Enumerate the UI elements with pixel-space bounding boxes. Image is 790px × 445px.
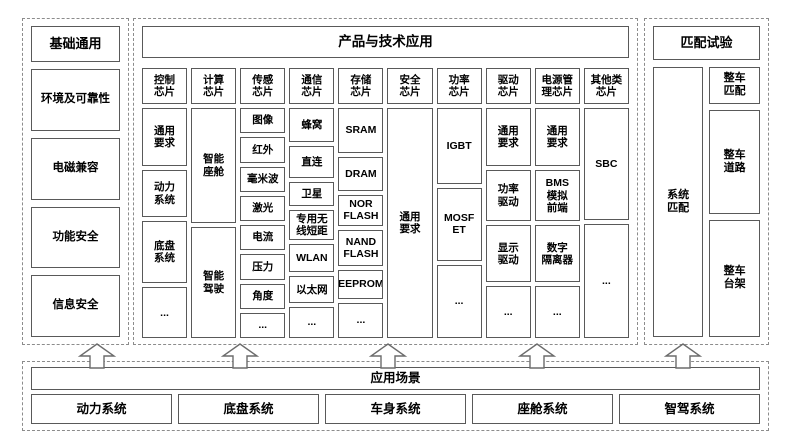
column-header: 电源管 理芯片 [535,68,580,104]
list-item-functional-safety: 功能安全 [31,207,120,269]
cell-intelligent-driving-system: 智驾系统 [619,394,760,424]
cell: DRAM [338,157,383,191]
cell: 通用 要求 [387,108,432,338]
cell: 功率 驱动 [486,170,531,222]
list-item-environment-reliability: 环境及可靠性 [31,69,120,131]
panel-products-technology-title: 产品与技术应用 [142,26,629,58]
column-security-chips: 安全 芯片 通用 要求 [387,68,432,338]
cell-system-matching: 系统 匹配 [653,67,703,337]
cell: 角度 [240,284,285,309]
column-header: 计算 芯片 [191,68,236,104]
cell: 显示 驱动 [486,225,531,282]
column-power-management-chips: 电源管 理芯片 通用 要求 BMS 模拟 前端 数字 隔离器 ... [535,68,580,338]
column-header: 驱动 芯片 [486,68,531,104]
cell-vehicle-bench: 整车 台架 [709,220,760,337]
cell: 图像 [240,108,285,133]
cell: 动力 系统 [142,170,187,217]
column-communication-chips: 通信 芯片 蜂窝 直连 卫星 专用无 线短距 WLAN 以太网 ... [289,68,334,338]
cell: 电流 [240,225,285,250]
panel-application-scenarios: 应用场景 动力系统 底盘系统 车身系统 座舱系统 智驾系统 [22,361,769,431]
column-computing-chips: 计算 芯片 智能 座舱 智能 驾驶 [191,68,236,338]
cell: ... [338,303,383,338]
panel-products-technology: 产品与技术应用 控制 芯片 通用 要求 动力 系统 底盘 系统 ... 计算 芯… [133,18,638,345]
up-arrow-icon [663,343,703,369]
cell: WLAN [289,244,334,272]
cell: ... [486,286,531,338]
up-arrow-icon [368,343,408,369]
cell: 通用 要求 [142,108,187,166]
cell: IGBT [437,108,482,184]
cell: ... [584,224,629,338]
cell: BMS 模拟 前端 [535,170,580,222]
list-item-information-security: 信息安全 [31,275,120,337]
up-arrow-icon [220,343,260,369]
cell: 智能 驾驶 [191,227,236,338]
cell: 通用 要求 [486,108,531,166]
up-arrow-icon [517,343,557,369]
column-control-chips: 控制 芯片 通用 要求 动力 系统 底盘 系统 ... [142,68,187,338]
cell: SBC [584,108,629,220]
system-row: 动力系统 底盘系统 车身系统 座舱系统 智驾系统 [31,394,760,424]
column-other-chips: 其他类 芯片 SBC ... [584,68,629,338]
cell: 激光 [240,196,285,221]
cell: 智能 座舱 [191,108,236,223]
cell: 以太网 [289,276,334,303]
column-driver-chips: 驱动 芯片 通用 要求 功率 驱动 显示 驱动 ... [486,68,531,338]
matching-test-content: 系统 匹配 整车 匹配 整车 道路 整车 台架 [653,67,760,337]
cell: ... [240,313,285,338]
cell: 专用无 线短距 [289,210,334,241]
panel-matching-test-title: 匹配试验 [653,26,760,60]
column-header: 传感 芯片 [240,68,285,104]
cell: 蜂窝 [289,108,334,142]
diagram-canvas: 基础通用 环境及可靠性 电磁兼容 功能安全 信息安全 产品与技术应用 控制 芯片… [0,0,790,445]
list-item-emc: 电磁兼容 [31,138,120,200]
cell-chassis-system: 底盘系统 [178,394,319,424]
cell: 数字 隔离器 [535,225,580,282]
up-arrow-icon [77,343,117,369]
cell: 红外 [240,137,285,162]
cell-powertrain-system: 动力系统 [31,394,172,424]
cell: ... [535,286,580,338]
column-header: 通信 芯片 [289,68,334,104]
chip-columns: 控制 芯片 通用 要求 动力 系统 底盘 系统 ... 计算 芯片 智能 座舱 … [142,68,629,338]
cell: 毫米波 [240,167,285,192]
cell: 直连 [289,146,334,179]
basic-general-list: 环境及可靠性 电磁兼容 功能安全 信息安全 [31,69,120,337]
column-header: 控制 芯片 [142,68,187,104]
panel-matching-test: 匹配试验 系统 匹配 整车 匹配 整车 道路 整车 台架 [644,18,769,345]
column-header: 安全 芯片 [387,68,432,104]
column-power-chips: 功率 芯片 IGBT MOSF ET ... [437,68,482,338]
cell: NOR FLASH [338,195,383,227]
panel-basic-general: 基础通用 环境及可靠性 电磁兼容 功能安全 信息安全 [22,18,129,345]
cell: NAND FLASH [338,230,383,265]
column-memory-chips: 存储 芯片 SRAM DRAM NOR FLASH NAND FLASH EEP… [338,68,383,338]
cell: 底盘 系统 [142,221,187,283]
cell: ... [142,287,187,338]
cell: ... [289,307,334,338]
vehicle-test-list: 整车 匹配 整车 道路 整车 台架 [709,67,760,337]
column-header: 其他类 芯片 [584,68,629,104]
cell: 通用 要求 [535,108,580,166]
cell: EEPROM [338,270,383,299]
cell: 压力 [240,254,285,279]
column-sensor-chips: 传感 芯片 图像 红外 毫米波 激光 电流 压力 角度 ... [240,68,285,338]
cell: MOSF ET [437,188,482,260]
application-scenarios-title: 应用场景 [31,367,760,390]
column-header: 功率 芯片 [437,68,482,104]
cell-vehicle-matching: 整车 匹配 [709,67,760,104]
cell: ... [437,265,482,338]
cell: 卫星 [289,182,334,205]
cell: SRAM [338,108,383,153]
panel-basic-general-title: 基础通用 [31,26,120,62]
cell-vehicle-road: 整车 道路 [709,110,760,214]
cell-body-system: 车身系统 [325,394,466,424]
column-header: 存储 芯片 [338,68,383,104]
cell-cockpit-system: 座舱系统 [472,394,613,424]
